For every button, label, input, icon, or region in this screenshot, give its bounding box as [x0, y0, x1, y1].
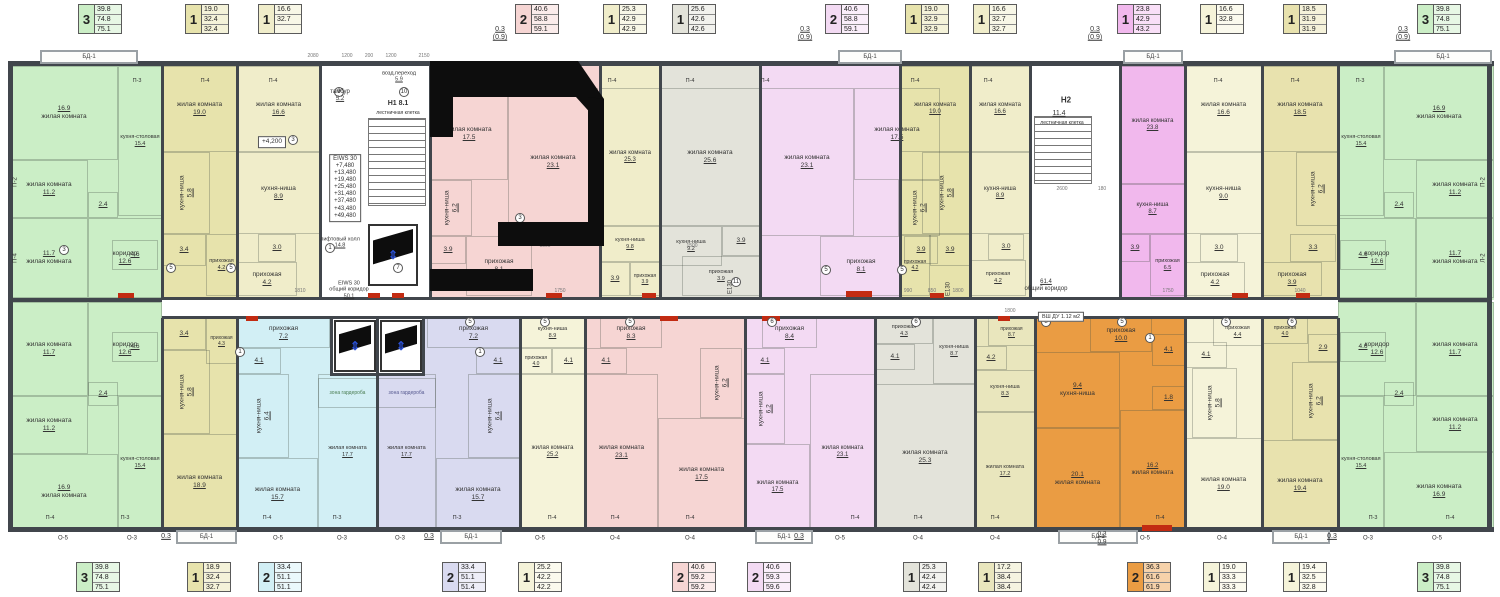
room: жилая комната11.2	[1416, 160, 1494, 218]
room-label: жилая комната17.2	[986, 464, 1024, 477]
room-label: 3.9	[1130, 244, 1139, 252]
room-label: кухня-ниша6.4	[255, 399, 271, 434]
grid-circle-label: 5	[1117, 317, 1127, 327]
room: кухня-ниша9.0	[1185, 152, 1262, 234]
plan-label: 850	[928, 289, 936, 295]
room-label: жилая комната18.5	[1277, 101, 1322, 117]
room: жилая комната25.3	[875, 384, 975, 530]
legend-area-value: 74.8	[1434, 573, 1460, 583]
room-label: жилая комната17.5	[679, 466, 724, 482]
legend-areas: 25.242.242.2	[535, 563, 561, 591]
room: 3.9	[722, 226, 760, 256]
wall	[759, 66, 762, 298]
wall	[1034, 318, 1037, 530]
wall	[1261, 318, 1264, 530]
room-label: кухня-ниша6.2	[443, 191, 459, 226]
room: кухня-ниша8.7	[933, 318, 975, 384]
plan-label: 0.3(0.9)	[493, 26, 507, 43]
legend-area-value: 74.8	[93, 573, 119, 583]
room: прихожая4.0	[520, 348, 552, 374]
room: прихожая3.9	[630, 262, 660, 296]
legend-room-count: 3	[1418, 563, 1434, 591]
room: кухня-ниша5.8	[1192, 368, 1237, 438]
plan-label: П-4	[851, 515, 860, 521]
plan-label: возд.переход5.9	[382, 71, 416, 84]
balcony: БД-1	[40, 50, 138, 64]
room-label: прихожая8.7	[1000, 326, 1022, 338]
legend-badge[interactable]: 233.451.151.4	[442, 562, 486, 592]
legend-badge[interactable]: 240.659.359.6	[747, 562, 791, 592]
wall	[659, 66, 662, 298]
room: жилая комната19.0	[162, 66, 237, 152]
legend-area-value: 59.2	[689, 573, 715, 583]
room: 2.9	[1308, 334, 1338, 362]
legend-room-count: 2	[443, 563, 459, 591]
legend-areas: 19.033.333.3	[1220, 563, 1246, 591]
room: жилая комната17.5	[745, 444, 810, 530]
balcony: БД-1	[176, 530, 237, 544]
plan-label: П-4	[548, 515, 557, 521]
room: кухня-ниша5.8	[162, 152, 210, 234]
room: кухня-ниша5.8	[922, 152, 970, 234]
legend-room-count: 2	[259, 563, 275, 591]
legend-area-value: 32.7	[204, 583, 230, 592]
room-label: кухня-ниша6.2	[757, 392, 773, 427]
room-label: 3.9	[736, 237, 745, 245]
room: жилая комната23.8	[1120, 66, 1185, 184]
plan-label: О-4	[610, 535, 620, 542]
room-label: 4.1	[760, 357, 769, 365]
room: прихожая4.2	[237, 262, 297, 296]
room: зона гардероба	[318, 378, 377, 408]
elevator-glyph: ⇕	[370, 226, 416, 284]
room: жилая комната11.2	[10, 160, 88, 218]
room-label: 4.1	[564, 357, 573, 365]
wall	[974, 318, 977, 530]
door-threshold-mark	[660, 316, 678, 321]
plan-label: 2150	[418, 54, 429, 60]
wall	[8, 61, 13, 532]
room-label: 3.9	[610, 275, 619, 283]
legend-badge[interactable]: 125.242.242.2	[518, 562, 562, 592]
grid-circle-label: 10	[399, 87, 409, 97]
plan-label: лестничная клетка	[1040, 121, 1083, 127]
balcony-label: БД-1	[1146, 54, 1159, 60]
room-label: жилая комната19.0	[1201, 476, 1246, 492]
room-label: 2.4	[1394, 390, 1403, 398]
legend-areas: 17.238.438.4	[995, 563, 1021, 591]
legend-area-value: 59.2	[689, 583, 715, 592]
balcony-label: БД-1	[777, 534, 790, 540]
plan-label: П-3	[453, 515, 462, 521]
room-label: кухня-ниша9.0	[1206, 185, 1241, 201]
plan-label: 1800	[952, 289, 963, 295]
room-label: жилая комната17.5	[757, 480, 799, 494]
legend-area-value: 32.5	[1300, 573, 1326, 583]
room-label: 9.4кухня-ниша	[1060, 382, 1095, 398]
room-label: жилая комната25.6	[687, 149, 732, 165]
plan-label: ВШ ДУ 1.12 м2	[1038, 312, 1084, 322]
plan-label: П-3	[121, 515, 130, 521]
room: прихожая4.2	[970, 260, 1026, 296]
legend-areas: 36.361.661.9	[1144, 563, 1170, 591]
room: жилая комната19.0	[1185, 438, 1262, 530]
door-threshold-mark	[118, 293, 134, 298]
grid-circle-label: 6	[911, 317, 921, 327]
legend-area-value: 61.9	[1144, 583, 1170, 592]
legend-area-value: 32.8	[1300, 583, 1326, 592]
room-label: прихожая3.9	[1278, 271, 1307, 287]
room: прихожая8.1	[820, 236, 902, 296]
room: прихожая4.3	[206, 318, 237, 364]
plan-label: О-4	[990, 535, 1000, 542]
room: кухня-ниша8.7	[1120, 184, 1185, 234]
room-label: жилая комната11.7	[26, 341, 71, 357]
room: жилая комната23.1	[810, 374, 875, 530]
wall	[1337, 318, 1340, 530]
plan-label: П-4	[608, 78, 617, 84]
room-label: 16.9жилая комната	[41, 105, 86, 121]
wall	[599, 66, 602, 298]
floor-plan: 16.9жилая комнатакухня-столовая15.4жилая…	[0, 0, 1500, 597]
room: 4.1	[745, 348, 785, 374]
wall	[8, 61, 1494, 66]
wall	[519, 318, 522, 530]
wall	[1184, 318, 1187, 530]
legend-area-value: 51.1	[459, 573, 485, 583]
wall	[429, 66, 432, 298]
grid-circle-label: 3	[288, 135, 298, 145]
legend-area-value: 59.6	[764, 583, 790, 592]
room: 1.8	[1152, 386, 1185, 410]
room: 2.4	[88, 382, 118, 406]
plan-label: Н2	[1061, 95, 1071, 104]
room-label: 16.2жилая комната	[1132, 463, 1174, 477]
room: кухня-ниша6.2	[430, 180, 472, 236]
room-label: 4.1	[254, 357, 263, 365]
plan-label: 0.3	[1327, 533, 1337, 541]
room-label: 16.9жилая комната	[41, 484, 86, 500]
room-label: 4.6	[1358, 343, 1367, 351]
room-label: кухня-ниша6.2	[1307, 384, 1323, 419]
room: жилая комната17.5	[658, 418, 745, 530]
legend-badge[interactable]: 240.659.259.2	[672, 562, 716, 592]
room: жилая комната11.2	[1416, 396, 1494, 452]
legend-badge[interactable]: 233.451.151.1	[258, 562, 302, 592]
plan-label: О-3	[337, 535, 347, 542]
elevator-glyph: ⇕	[382, 322, 420, 370]
wall	[332, 373, 424, 376]
plan-label: О-4	[685, 535, 695, 542]
legend-area-value: 75.1	[1434, 583, 1460, 592]
room: 2.4	[1384, 382, 1414, 406]
wall	[376, 318, 379, 530]
room-label: 4.1	[1201, 351, 1210, 359]
room-label: жилая комната23.1	[784, 154, 829, 170]
plan-label: П-3	[1369, 515, 1378, 521]
room-label: прихожая8.1	[847, 258, 876, 274]
elevator-glyph: ⇕	[336, 322, 374, 370]
room: прихожая8.7	[988, 318, 1035, 346]
room-label: прихожая8.1	[485, 258, 514, 274]
legend-area-value: 19.0	[1220, 563, 1246, 573]
plan-label: О-4	[913, 535, 923, 542]
plan-label: лифтовый холл14.8	[320, 237, 360, 250]
legend-area-value: 25.2	[535, 563, 561, 573]
wall	[584, 318, 587, 530]
room-label: 2.4	[1394, 201, 1403, 209]
plan-label: П-4	[1156, 515, 1165, 521]
room-label: жилая комната15.7	[255, 486, 300, 502]
grid-circle-label: 5	[1221, 317, 1231, 327]
room-label: кухня-столовая15.4	[1341, 456, 1380, 469]
room: 4.1	[585, 348, 627, 374]
room: кухня-столовая15.4	[1338, 396, 1384, 530]
plan-label: 1500	[686, 244, 697, 250]
room: кухня-столовая15.4	[118, 66, 162, 216]
room: прихожая4.2	[1185, 262, 1245, 296]
room-label: 1.8	[1164, 394, 1173, 402]
plan-label: 0.30.9	[1097, 530, 1106, 545]
room: жилая комната25.3	[600, 88, 660, 226]
room-label: жилая комната16.6	[979, 102, 1021, 116]
door-threshold-mark	[246, 316, 258, 321]
room-label: 4.6	[130, 343, 139, 351]
legend-badge[interactable]: 339.874.875.1	[76, 562, 120, 592]
balcony-label: БД-1	[464, 534, 477, 540]
room-label: зона гардероба	[389, 390, 425, 396]
legend-area-value: 40.6	[689, 563, 715, 573]
door-threshold-mark	[1232, 293, 1248, 298]
room: 3.3	[1290, 234, 1336, 262]
grid-circle-label: 3	[515, 213, 525, 223]
room: жилая комната15.7	[436, 458, 520, 530]
room-label: кухня-столовая15.4	[120, 456, 159, 469]
legend-badge[interactable]: 236.361.661.9	[1127, 562, 1171, 592]
wall	[161, 66, 164, 298]
wall	[1337, 66, 1340, 298]
room: кухня-ниша9.8	[600, 226, 660, 262]
room: 9.4кухня-ниша	[1035, 352, 1120, 428]
legend-area-value: 25.3	[920, 563, 946, 573]
plan-label: П-4	[46, 515, 55, 521]
grid-circle-label: 5	[226, 263, 236, 273]
room: жилая комната15.7	[237, 458, 318, 530]
room: жилая комната23.1	[760, 88, 854, 236]
plan-label: 61.4общий коридор	[1025, 279, 1068, 293]
room: жилая комната16.6	[970, 66, 1030, 152]
room: 20.1жилая комната	[1035, 428, 1120, 530]
room: прихожая7.2	[237, 318, 330, 348]
legend-badge[interactable]: 125.342.442.4	[903, 562, 947, 592]
legend-area-value: 17.2	[995, 563, 1021, 573]
room: кухня-ниша6.2	[700, 348, 742, 418]
grid-circle-label: 5	[897, 265, 907, 275]
legend-areas: 33.451.151.4	[459, 563, 485, 591]
legend-area-value: 51.1	[275, 583, 301, 592]
room: 16.9жилая комната	[10, 454, 118, 530]
plan-label: О-3	[127, 535, 137, 542]
room: жилая комната19.4	[1262, 440, 1338, 530]
legend-badge[interactable]: 118.932.432.7	[187, 562, 231, 592]
grid-circle-label: 3	[59, 245, 69, 255]
wall	[10, 298, 162, 302]
wall	[969, 66, 972, 298]
legend-area-value: 38.4	[995, 583, 1021, 592]
plan-label: 0.3(0.9)	[1396, 26, 1410, 43]
plan-label: О-5	[535, 535, 545, 542]
room: прихожая3.9	[1262, 262, 1322, 296]
legend-area-value: 42.4	[920, 573, 946, 583]
balcony-label: БД-1	[863, 54, 876, 60]
room-label: кухня-столовая15.4	[120, 134, 159, 147]
room-label: жилая комната17.5	[446, 126, 491, 142]
room: кухня-ниша5.8	[162, 350, 210, 434]
room-label: 3.9	[443, 246, 452, 254]
room-label: кухня-ниша9.8	[615, 237, 644, 250]
wall	[422, 318, 425, 376]
plan-label: 1800	[1004, 309, 1015, 315]
room: прихожая4.0	[1262, 318, 1308, 344]
room: 3.0	[258, 234, 296, 262]
balcony: БД-1	[1272, 530, 1330, 544]
balcony: БД-1	[1394, 50, 1492, 64]
room: кухня-ниша8.9	[237, 152, 320, 234]
room-label: кухня-ниша5.8	[178, 176, 194, 211]
room: кухня-ниша8.9	[970, 152, 1030, 234]
legend-room-count: 1	[979, 563, 995, 591]
room: 2.4	[88, 192, 118, 218]
room-label: кухня-ниша8.7	[1136, 202, 1168, 216]
plan-label: О-5	[273, 535, 283, 542]
room-label: кухня-ниша8.9	[538, 326, 567, 339]
room: жилая комната11.7	[1416, 302, 1494, 396]
room: 3.9	[430, 236, 466, 264]
room-label: 4.6	[130, 251, 139, 259]
legend-areas: 18.932.432.7	[204, 563, 230, 591]
room: 2.4	[1384, 192, 1414, 218]
floor-plan-page: 339.874.875.1119.032.432.4116.632.7240.6…	[0, 0, 1500, 597]
wall	[1119, 66, 1122, 298]
room: кухня-ниша6.2	[1292, 362, 1338, 440]
plan-label: Е130	[727, 280, 734, 294]
legend-area-value: 33.3	[1220, 583, 1246, 592]
room-label: жилая комната25.3	[902, 449, 947, 465]
room-label: 4.1	[493, 357, 502, 365]
legend-area-value: 51.1	[275, 573, 301, 583]
room-label: 3.4	[179, 246, 188, 254]
legend-area-value: 32.4	[204, 573, 230, 583]
room-label: прихожая4.0	[525, 355, 547, 367]
room: прихожая6.5	[1150, 234, 1185, 296]
room-label: кухня-ниша8.9	[984, 186, 1016, 200]
room: жилая комната25.2	[520, 374, 585, 530]
plan-label: 0.3	[794, 533, 804, 541]
legend-areas: 40.659.359.6	[764, 563, 790, 591]
plan-label: О-5	[1432, 535, 1442, 542]
legend-badge[interactable]: 119.432.532.8	[1283, 562, 1327, 592]
room-label: жилая комната11.2	[26, 417, 71, 433]
balcony-label: БД-1	[82, 54, 95, 60]
room-label: 4.6	[1358, 251, 1367, 259]
door-threshold-mark	[368, 293, 380, 298]
plan-label: П-4	[686, 78, 695, 84]
plan-label: П-4	[269, 78, 278, 84]
grid-circle-label: 5	[821, 265, 831, 275]
room-label: кухня-ниша5.8	[938, 176, 954, 211]
room-label: 16.9жилая комната	[1416, 105, 1461, 121]
plan-label: 1750	[1162, 289, 1173, 295]
door-threshold-mark	[392, 293, 404, 298]
room: прихожая8.1	[466, 236, 532, 296]
room: жилая комната23.1	[585, 374, 658, 530]
room-label: кухня-ниша6.2	[713, 366, 729, 401]
legend-badge[interactable]: 339.874.875.1	[1417, 562, 1461, 592]
plan-label: П-4	[201, 78, 210, 84]
room: 16.9жилая комната	[1384, 66, 1494, 160]
plan-label: Л-2	[1480, 253, 1487, 262]
room: 4.2	[975, 346, 1007, 370]
room-label: кухня-ниша6.4	[486, 399, 502, 434]
legend-area-value: 33.4	[459, 563, 485, 573]
room: 4.6	[112, 240, 158, 270]
room-label: жилая комната23.8	[1132, 118, 1174, 132]
legend-badge[interactable]: 117.238.438.4	[978, 562, 1022, 592]
legend-area-value: 36.3	[1144, 563, 1170, 573]
room-label: 4.1	[601, 357, 610, 365]
plan-label: П-4	[911, 78, 920, 84]
legend-badge[interactable]: 119.033.333.3	[1203, 562, 1247, 592]
room-label: 3.3	[1308, 244, 1317, 252]
room-label: жилая комната23.1	[599, 444, 644, 460]
room-label: кухня-ниша8.7	[939, 344, 968, 357]
room: 16.2жилая комната	[1120, 410, 1185, 530]
wall	[1184, 66, 1187, 298]
room-label: 11.7жилая комната	[1432, 250, 1477, 266]
plan-label: П-3	[1356, 78, 1365, 84]
room-label: прихожая4.2	[904, 259, 926, 271]
room-label: 2.9	[1318, 344, 1327, 352]
room-label: жилая комната25.3	[609, 150, 651, 164]
legend-room-count: 1	[904, 563, 920, 591]
room: 3.0	[988, 234, 1024, 260]
grid-circle-label: 6	[767, 317, 777, 327]
plan-label: 1200	[385, 54, 396, 60]
room-label: прихожая4.2	[253, 271, 282, 287]
plan-label: 200	[365, 54, 373, 60]
room: 4.1	[552, 348, 585, 374]
room: жилая комната16.6	[1185, 66, 1262, 152]
room-label: прихожая10.0	[1107, 327, 1136, 343]
room-label: зона гардероба	[330, 390, 366, 396]
room: кухня-ниша8.3	[975, 370, 1035, 412]
room: 4.6	[1340, 332, 1386, 362]
room-label: кухня-ниша6.2	[1309, 172, 1325, 207]
room: жилая комната25.6	[660, 88, 760, 226]
room: кухня-столовая15.4	[118, 396, 162, 530]
plan-label: EIWS 30+7,480+13,480+19,480+25,480+31,48…	[329, 154, 361, 222]
legend-area-value: 38.4	[995, 573, 1021, 583]
room: жилая комната18.9	[162, 434, 237, 530]
balcony-label: БД-1	[1294, 534, 1307, 540]
room: 3.0	[1200, 234, 1238, 262]
room-label: прихожая6.5	[1155, 258, 1180, 271]
room: 4.1	[875, 344, 915, 370]
room-label: кухня-ниша8.9	[261, 185, 296, 201]
plan-label: П-4	[1291, 78, 1300, 84]
plan-label: 180	[1098, 187, 1106, 193]
room: зона гардероба	[377, 378, 436, 408]
